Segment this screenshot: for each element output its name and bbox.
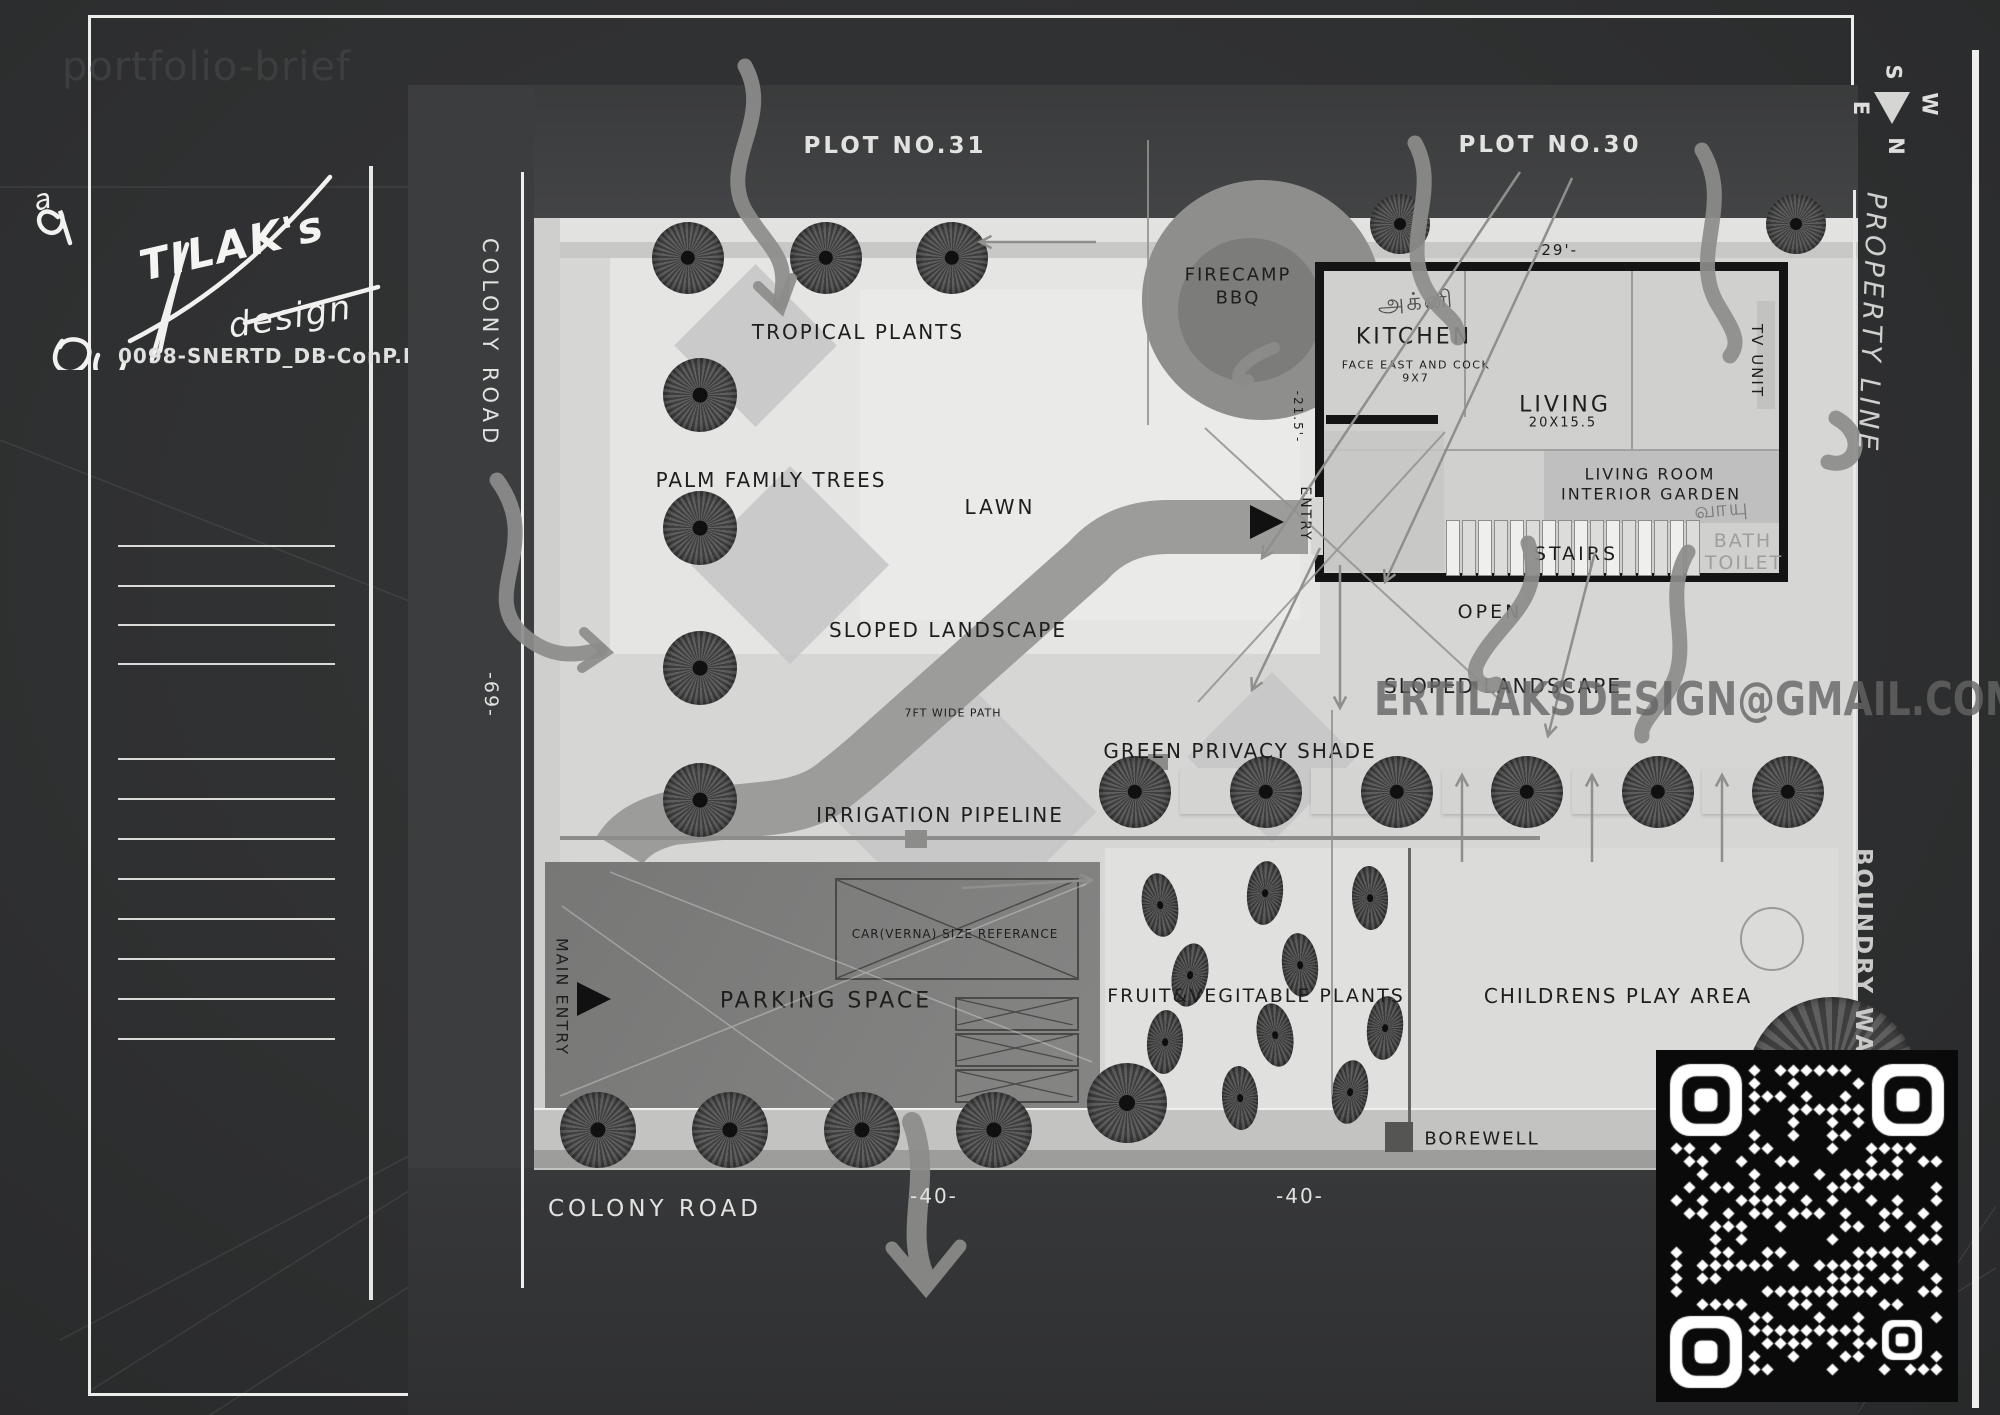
compass-needle-icon (1874, 92, 1910, 124)
plot-31-label: PLOT NO.31 (804, 133, 987, 159)
email-watermark: ERTILAKSDESIGN@GMAIL.COM (1374, 672, 2000, 726)
qr-code (1656, 1050, 1958, 1402)
road-bottom-dim-1: -40- (910, 1184, 958, 1208)
colony-road-left-label: COLONY ROAD (478, 238, 502, 448)
colony-road-bottom-label: COLONY ROAD (548, 1196, 762, 1222)
compass-rose: S E W N (1846, 52, 1950, 172)
road-left-dimension: -69- (480, 672, 502, 718)
compass-n: N (1884, 137, 1908, 155)
compass-w: W (1918, 92, 1942, 115)
road-bottom-dim-2: -40- (1276, 1184, 1324, 1208)
plot-30-label: PLOT NO.30 (1459, 132, 1642, 158)
compass-s: S (1882, 64, 1906, 79)
site-plan-sheet: portfolio-brief a TILAK's design 0098-SN… (0, 0, 2000, 1415)
compass-e: E (1849, 101, 1873, 115)
